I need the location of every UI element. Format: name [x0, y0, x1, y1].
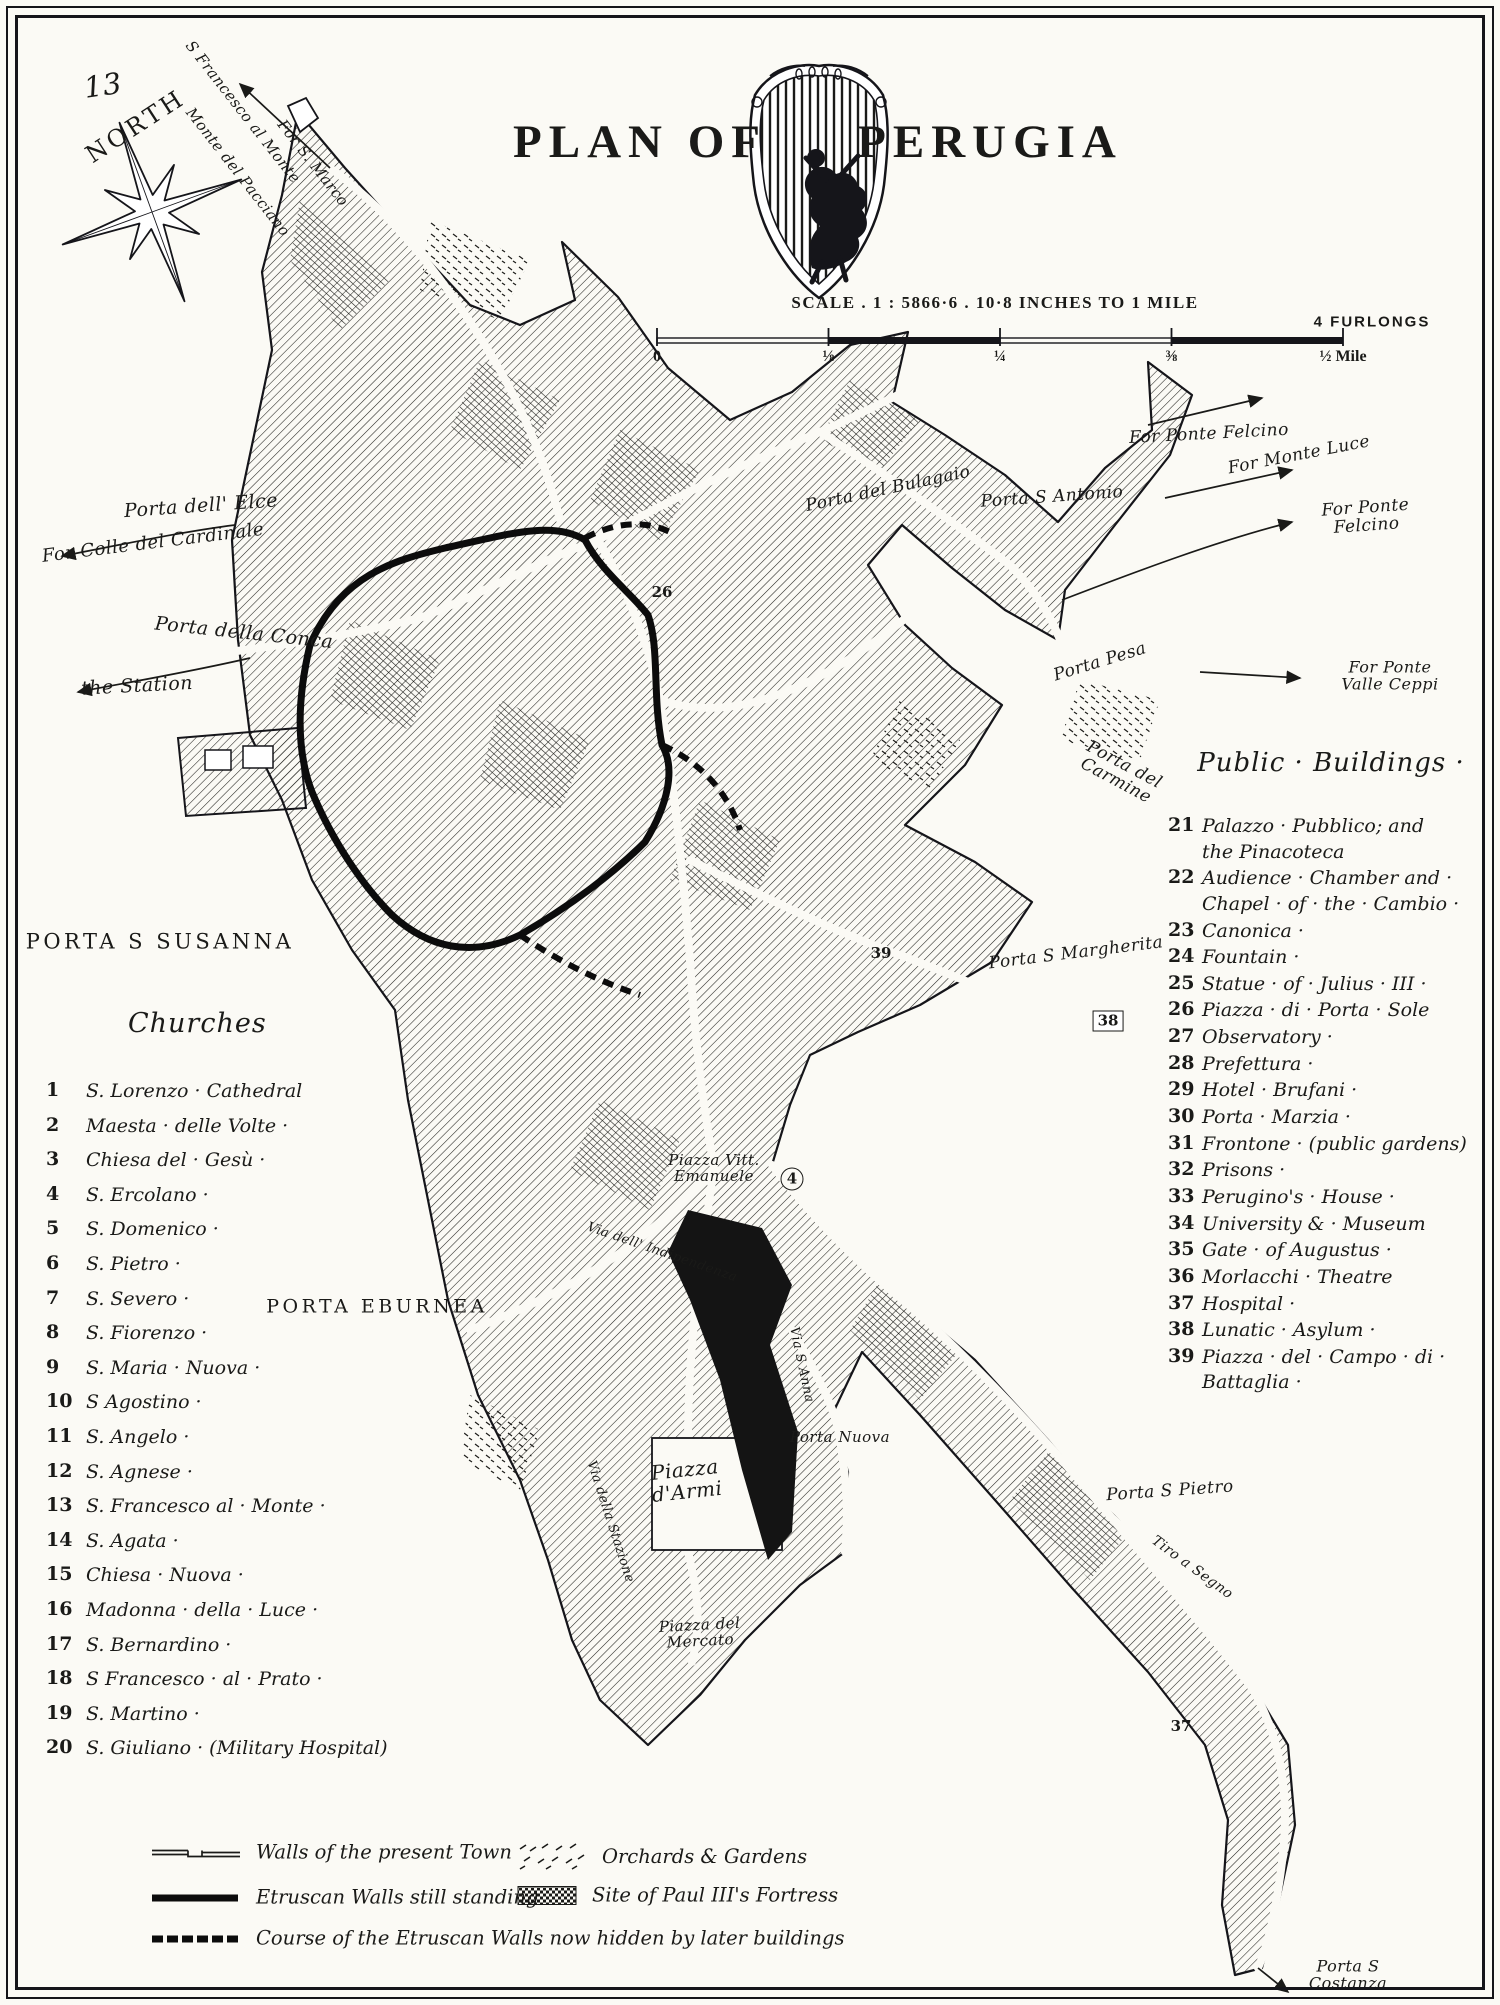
- item-number: 18: [46, 1667, 86, 1689]
- item-number: 8: [46, 1321, 86, 1343]
- church-list-item: 19S. Martino ·: [46, 1702, 486, 1737]
- church-list-item: 5S. Domenico ·: [46, 1217, 486, 1252]
- building-list-item: 21Palazzo · Pubblico; and the Pinacoteca: [1168, 814, 1494, 865]
- item-number: 31: [1168, 1132, 1202, 1154]
- scale-tick-label: 0: [653, 348, 661, 366]
- map-label: Porta del Bulagaio: [804, 463, 972, 516]
- church-list-item: 12S. Agnese ·: [46, 1460, 486, 1495]
- fortress-symbol: [516, 1884, 578, 1906]
- building-list-item: 32Prisons ·: [1168, 1158, 1494, 1184]
- item-name: S. Maria · Nuova ·: [86, 1356, 260, 1382]
- church-list-item: 11S. Angelo ·: [46, 1425, 486, 1460]
- item-name: University & · Museum: [1202, 1212, 1426, 1238]
- map-label: Via della Stazione: [584, 1459, 637, 1584]
- public-buildings-panel: Public · Buildings · 21Palazzo · Pubblic…: [1168, 748, 1494, 1397]
- building-list-item: 36Morlacchi · Theatre: [1168, 1265, 1494, 1291]
- legend-row: Etruscan Walls still standing: [150, 1886, 538, 1909]
- item-name: Palazzo · Pubblico; and the Pinacoteca: [1202, 814, 1424, 865]
- church-list-item: 16Madonna · della · Luce ·: [46, 1598, 486, 1633]
- building-list-item: 35Gate · of Augustus ·: [1168, 1238, 1494, 1264]
- title-perugia: PERUGIA: [857, 115, 1123, 169]
- item-number: 11: [46, 1425, 86, 1447]
- item-name: Porta · Marzia ·: [1202, 1105, 1351, 1131]
- churches-panel: Churches 1S. Lorenzo · Cathedral2Maesta …: [46, 1008, 486, 1771]
- item-number: 37: [1168, 1292, 1202, 1314]
- map-number: 4: [781, 1168, 804, 1191]
- etruscan-walls-symbol: [150, 1888, 242, 1906]
- church-list-item: 8S. Fiorenzo ·: [46, 1321, 486, 1356]
- item-number: 28: [1168, 1052, 1202, 1074]
- scale-tick-label: ⅛: [823, 348, 835, 366]
- item-name: S. Severo ·: [86, 1287, 189, 1313]
- building-list-item: 28Prefettura ·: [1168, 1052, 1494, 1078]
- item-name: S. Lorenzo · Cathedral: [86, 1079, 302, 1105]
- item-number: 36: [1168, 1265, 1202, 1287]
- item-number: 38: [1168, 1318, 1202, 1340]
- legend-label: Etruscan Walls still standing: [256, 1886, 538, 1909]
- item-name: Audience · Chamber and · Chapel · of · t…: [1202, 866, 1459, 917]
- item-name: S. Angelo ·: [86, 1425, 189, 1451]
- building-list-item: 25Statue · of · Julius · III ·: [1168, 972, 1494, 998]
- item-name: S. Bernardino ·: [86, 1633, 231, 1659]
- item-name: S. Fiorenzo ·: [86, 1321, 207, 1347]
- church-list-item: 20S. Giuliano · (Military Hospital): [46, 1736, 486, 1771]
- church-list-item: 13S. Francesco al · Monte ·: [46, 1494, 486, 1529]
- item-name: S. Domenico ·: [86, 1217, 219, 1243]
- item-number: 12: [46, 1460, 86, 1482]
- map-label: For Colle del Cardinale: [41, 520, 265, 567]
- present-walls-symbol: [150, 1843, 242, 1861]
- map-label: Porta dell' Elce: [123, 490, 278, 521]
- building-list-item: 34University & · Museum: [1168, 1212, 1494, 1238]
- item-name: S Francesco · al · Prato ·: [86, 1667, 323, 1693]
- church-list-item: 15Chiesa · Nuova ·: [46, 1563, 486, 1598]
- map-label: Via dell' Indipendenza: [585, 1221, 739, 1286]
- building-list-item: 37Hospital ·: [1168, 1292, 1494, 1318]
- orchards-symbol: [516, 1841, 588, 1871]
- map-number: 38: [1093, 1011, 1124, 1032]
- item-number: 13: [46, 1494, 86, 1516]
- legend-label: Site of Paul III's Fortress: [592, 1884, 838, 1907]
- building-list-item: 30Porta · Marzia ·: [1168, 1105, 1494, 1131]
- map-label: Porta S Antonio: [980, 483, 1124, 511]
- item-name: Morlacchi · Theatre: [1202, 1265, 1393, 1291]
- legend-label: Walls of the present Town: [256, 1841, 512, 1864]
- item-name: S. Francesco al · Monte ·: [86, 1494, 326, 1520]
- map-label: Porta S Costanza: [1309, 1958, 1387, 1993]
- item-name: S. Agnese ·: [86, 1460, 193, 1486]
- item-number: 16: [46, 1598, 86, 1620]
- item-number: 6: [46, 1252, 86, 1274]
- map-number: 26: [652, 583, 673, 601]
- map-label: For Ponte Valle Ceppi: [1335, 659, 1445, 694]
- building-list-item: 24Fountain ·: [1168, 945, 1494, 971]
- item-number: 21: [1168, 814, 1202, 836]
- map-label: Porta Nuova: [790, 1429, 890, 1445]
- furlongs-label: 4 FURLONGS: [1314, 314, 1431, 331]
- building-list-item: 33Perugino's · House ·: [1168, 1185, 1494, 1211]
- item-number: 22: [1168, 866, 1202, 888]
- map-label: Piazza d'Armi: [649, 1456, 724, 1506]
- scale-tick-label: ⅜: [1166, 348, 1178, 366]
- item-name: Piazza · del · Campo · di · Battaglia ·: [1202, 1345, 1445, 1396]
- item-name: Fountain ·: [1202, 945, 1299, 971]
- item-number: 1: [46, 1079, 86, 1101]
- map-label: Porta S Margherita: [988, 933, 1165, 973]
- item-name: S. Martino ·: [86, 1702, 200, 1728]
- church-list-item: 4S. Ercolano ·: [46, 1183, 486, 1218]
- legend-label: Course of the Etruscan Walls now hidden …: [256, 1927, 844, 1950]
- item-number: 39: [1168, 1345, 1202, 1367]
- item-name: Gate · of Augustus ·: [1202, 1238, 1392, 1264]
- item-number: 14: [46, 1529, 86, 1551]
- etruscan-hidden-symbol: [150, 1929, 242, 1947]
- item-number: 32: [1168, 1158, 1202, 1180]
- building-list-item: 31Frontone · (public gardens): [1168, 1132, 1494, 1158]
- scale-caption: SCALE . 1 : 5866·6 . 10·8 INCHES TO 1 MI…: [791, 293, 1198, 313]
- map-label: Porta del Carmine: [1075, 737, 1165, 808]
- item-name: Chiesa del · Gesù ·: [86, 1148, 265, 1174]
- item-name: S. Agata ·: [86, 1529, 179, 1555]
- map-number: 39: [871, 944, 892, 962]
- item-number: 27: [1168, 1025, 1202, 1047]
- church-list-item: 9S. Maria · Nuova ·: [46, 1356, 486, 1391]
- item-number: 33: [1168, 1185, 1202, 1207]
- item-number: 10: [46, 1390, 86, 1412]
- item-name: S. Pietro ·: [86, 1252, 181, 1278]
- map-label: Tiro a Segno: [1149, 1534, 1236, 1603]
- item-number: 19: [46, 1702, 86, 1724]
- item-name: Lunatic · Asylum ·: [1202, 1318, 1376, 1344]
- churches-heading: Churches: [128, 1008, 486, 1039]
- building-list-item: 39Piazza · del · Campo · di · Battaglia …: [1168, 1345, 1494, 1396]
- map-label: PORTA S SUSANNA: [26, 931, 295, 954]
- item-number: 2: [46, 1114, 86, 1136]
- map-label: 13: [82, 68, 124, 104]
- item-name: Hotel · Brufani ·: [1202, 1078, 1357, 1104]
- church-list-item: 7S. Severo ·: [46, 1287, 486, 1322]
- church-list-item: 14S. Agata ·: [46, 1529, 486, 1564]
- church-list: 1S. Lorenzo · Cathedral2Maesta · delle V…: [46, 1079, 486, 1771]
- legend-row: Orchards & Gardens: [516, 1841, 807, 1871]
- church-list-item: 18S Francesco · al · Prato ·: [46, 1667, 486, 1702]
- item-number: 26: [1168, 998, 1202, 1020]
- map-label: Porta della Conca: [154, 613, 334, 652]
- item-name: S. Giuliano · (Military Hospital): [86, 1736, 388, 1762]
- item-number: 3: [46, 1148, 86, 1170]
- item-name: Maesta · delle Volte ·: [86, 1114, 288, 1140]
- building-list-item: 22Audience · Chamber and · Chapel · of ·…: [1168, 866, 1494, 917]
- map-number: 37: [1171, 1717, 1192, 1735]
- church-list-item: 2Maesta · delle Volte ·: [46, 1114, 486, 1149]
- building-list-item: 38Lunatic · Asylum ·: [1168, 1318, 1494, 1344]
- map-stage: PLAN OF PERUGIA SCALE . 1 : 5866·6 . 10·…: [0, 0, 1500, 2005]
- church-list-item: 1S. Lorenzo · Cathedral: [46, 1079, 486, 1114]
- item-name: Chiesa · Nuova ·: [86, 1563, 244, 1589]
- item-name: Frontone · (public gardens): [1202, 1132, 1467, 1158]
- scale-tick-label: ¼: [994, 348, 1006, 366]
- building-list-item: 26Piazza · di · Porta · Sole: [1168, 998, 1494, 1024]
- item-name: Observatory ·: [1202, 1025, 1333, 1051]
- item-name: Canonica ·: [1202, 919, 1304, 945]
- item-name: Hospital ·: [1202, 1292, 1295, 1318]
- item-number: 30: [1168, 1105, 1202, 1127]
- item-name: Piazza · di · Porta · Sole: [1202, 998, 1429, 1024]
- item-number: 24: [1168, 945, 1202, 967]
- building-list-item: 23Canonica ·: [1168, 919, 1494, 945]
- item-name: S. Ercolano ·: [86, 1183, 209, 1209]
- title-plan-of: PLAN OF: [513, 115, 767, 169]
- item-name: Madonna · della · Luce ·: [86, 1598, 318, 1624]
- map-label: For Ponte Felcino: [1298, 494, 1434, 540]
- church-list-item: 10S Agostino ·: [46, 1390, 486, 1425]
- map-page: PLAN OF PERUGIA SCALE . 1 : 5866·6 . 10·…: [0, 0, 1500, 2005]
- item-number: 20: [46, 1736, 86, 1758]
- legend-row: Site of Paul III's Fortress: [516, 1884, 838, 1907]
- legend-row: Course of the Etruscan Walls now hidden …: [150, 1927, 844, 1950]
- church-list-item: 17S. Bernardino ·: [46, 1633, 486, 1668]
- legend-row: Walls of the present Town: [150, 1841, 512, 1864]
- item-number: 25: [1168, 972, 1202, 994]
- scale-tick-label: ½ Mile: [1319, 348, 1366, 366]
- item-number: 9: [46, 1356, 86, 1378]
- item-name: S Agostino ·: [86, 1390, 202, 1416]
- building-list-item: 29Hotel · Brufani ·: [1168, 1078, 1494, 1104]
- map-label: the Station: [81, 673, 194, 699]
- public-buildings-heading: Public · Buildings ·: [1168, 748, 1494, 778]
- legend-label: Orchards & Gardens: [602, 1845, 807, 1868]
- item-number: 17: [46, 1633, 86, 1655]
- map-label: Piazza del Mercato: [658, 1615, 741, 1652]
- item-name: Statue · of · Julius · III ·: [1202, 972, 1427, 998]
- church-list-item: 6S. Pietro ·: [46, 1252, 486, 1287]
- item-number: 15: [46, 1563, 86, 1585]
- building-list: 21Palazzo · Pubblico; and the Pinacoteca…: [1168, 814, 1494, 1396]
- item-name: Prefettura ·: [1202, 1052, 1313, 1078]
- church-list-item: 3Chiesa del · Gesù ·: [46, 1148, 486, 1183]
- item-number: 29: [1168, 1078, 1202, 1100]
- item-number: 34: [1168, 1212, 1202, 1234]
- map-label: Piazza Vitt. Emanuele: [668, 1152, 760, 1184]
- map-label: For Ponte Felcino: [1129, 421, 1290, 448]
- map-label: Porta Pesa: [1051, 639, 1148, 685]
- item-number: 5: [46, 1217, 86, 1239]
- item-name: Prisons ·: [1202, 1158, 1285, 1184]
- map-label: Porta S Pietro: [1106, 1477, 1235, 1504]
- item-number: 7: [46, 1287, 86, 1309]
- map-label: Via S Anna: [786, 1326, 816, 1404]
- item-name: Perugino's · House ·: [1202, 1185, 1395, 1211]
- building-list-item: 27Observatory ·: [1168, 1025, 1494, 1051]
- item-number: 23: [1168, 919, 1202, 941]
- item-number: 4: [46, 1183, 86, 1205]
- item-number: 35: [1168, 1238, 1202, 1260]
